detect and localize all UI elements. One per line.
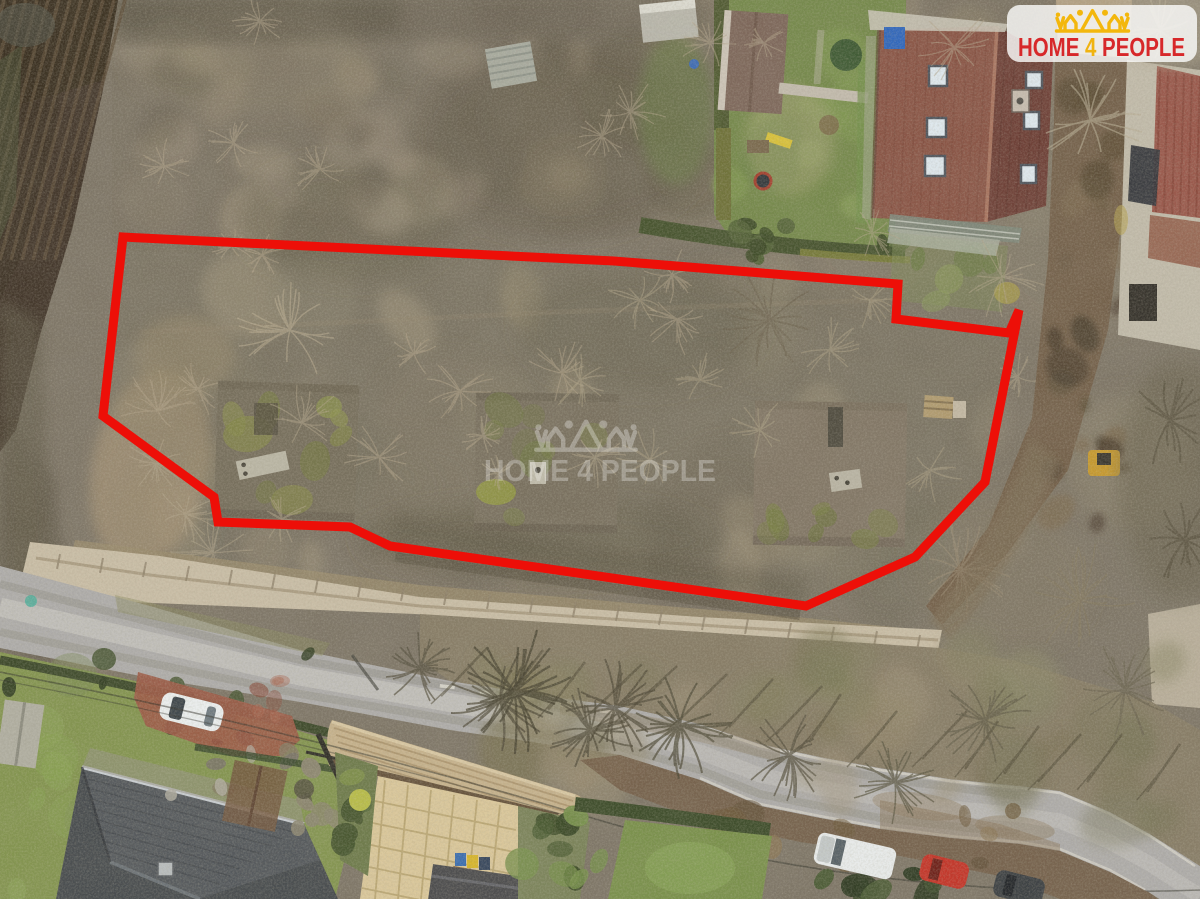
svg-text:HOME 4 PEOPLE: HOME 4 PEOPLE <box>1018 32 1185 62</box>
svg-text:HOME 4 PEOPLE: HOME 4 PEOPLE <box>484 453 716 488</box>
